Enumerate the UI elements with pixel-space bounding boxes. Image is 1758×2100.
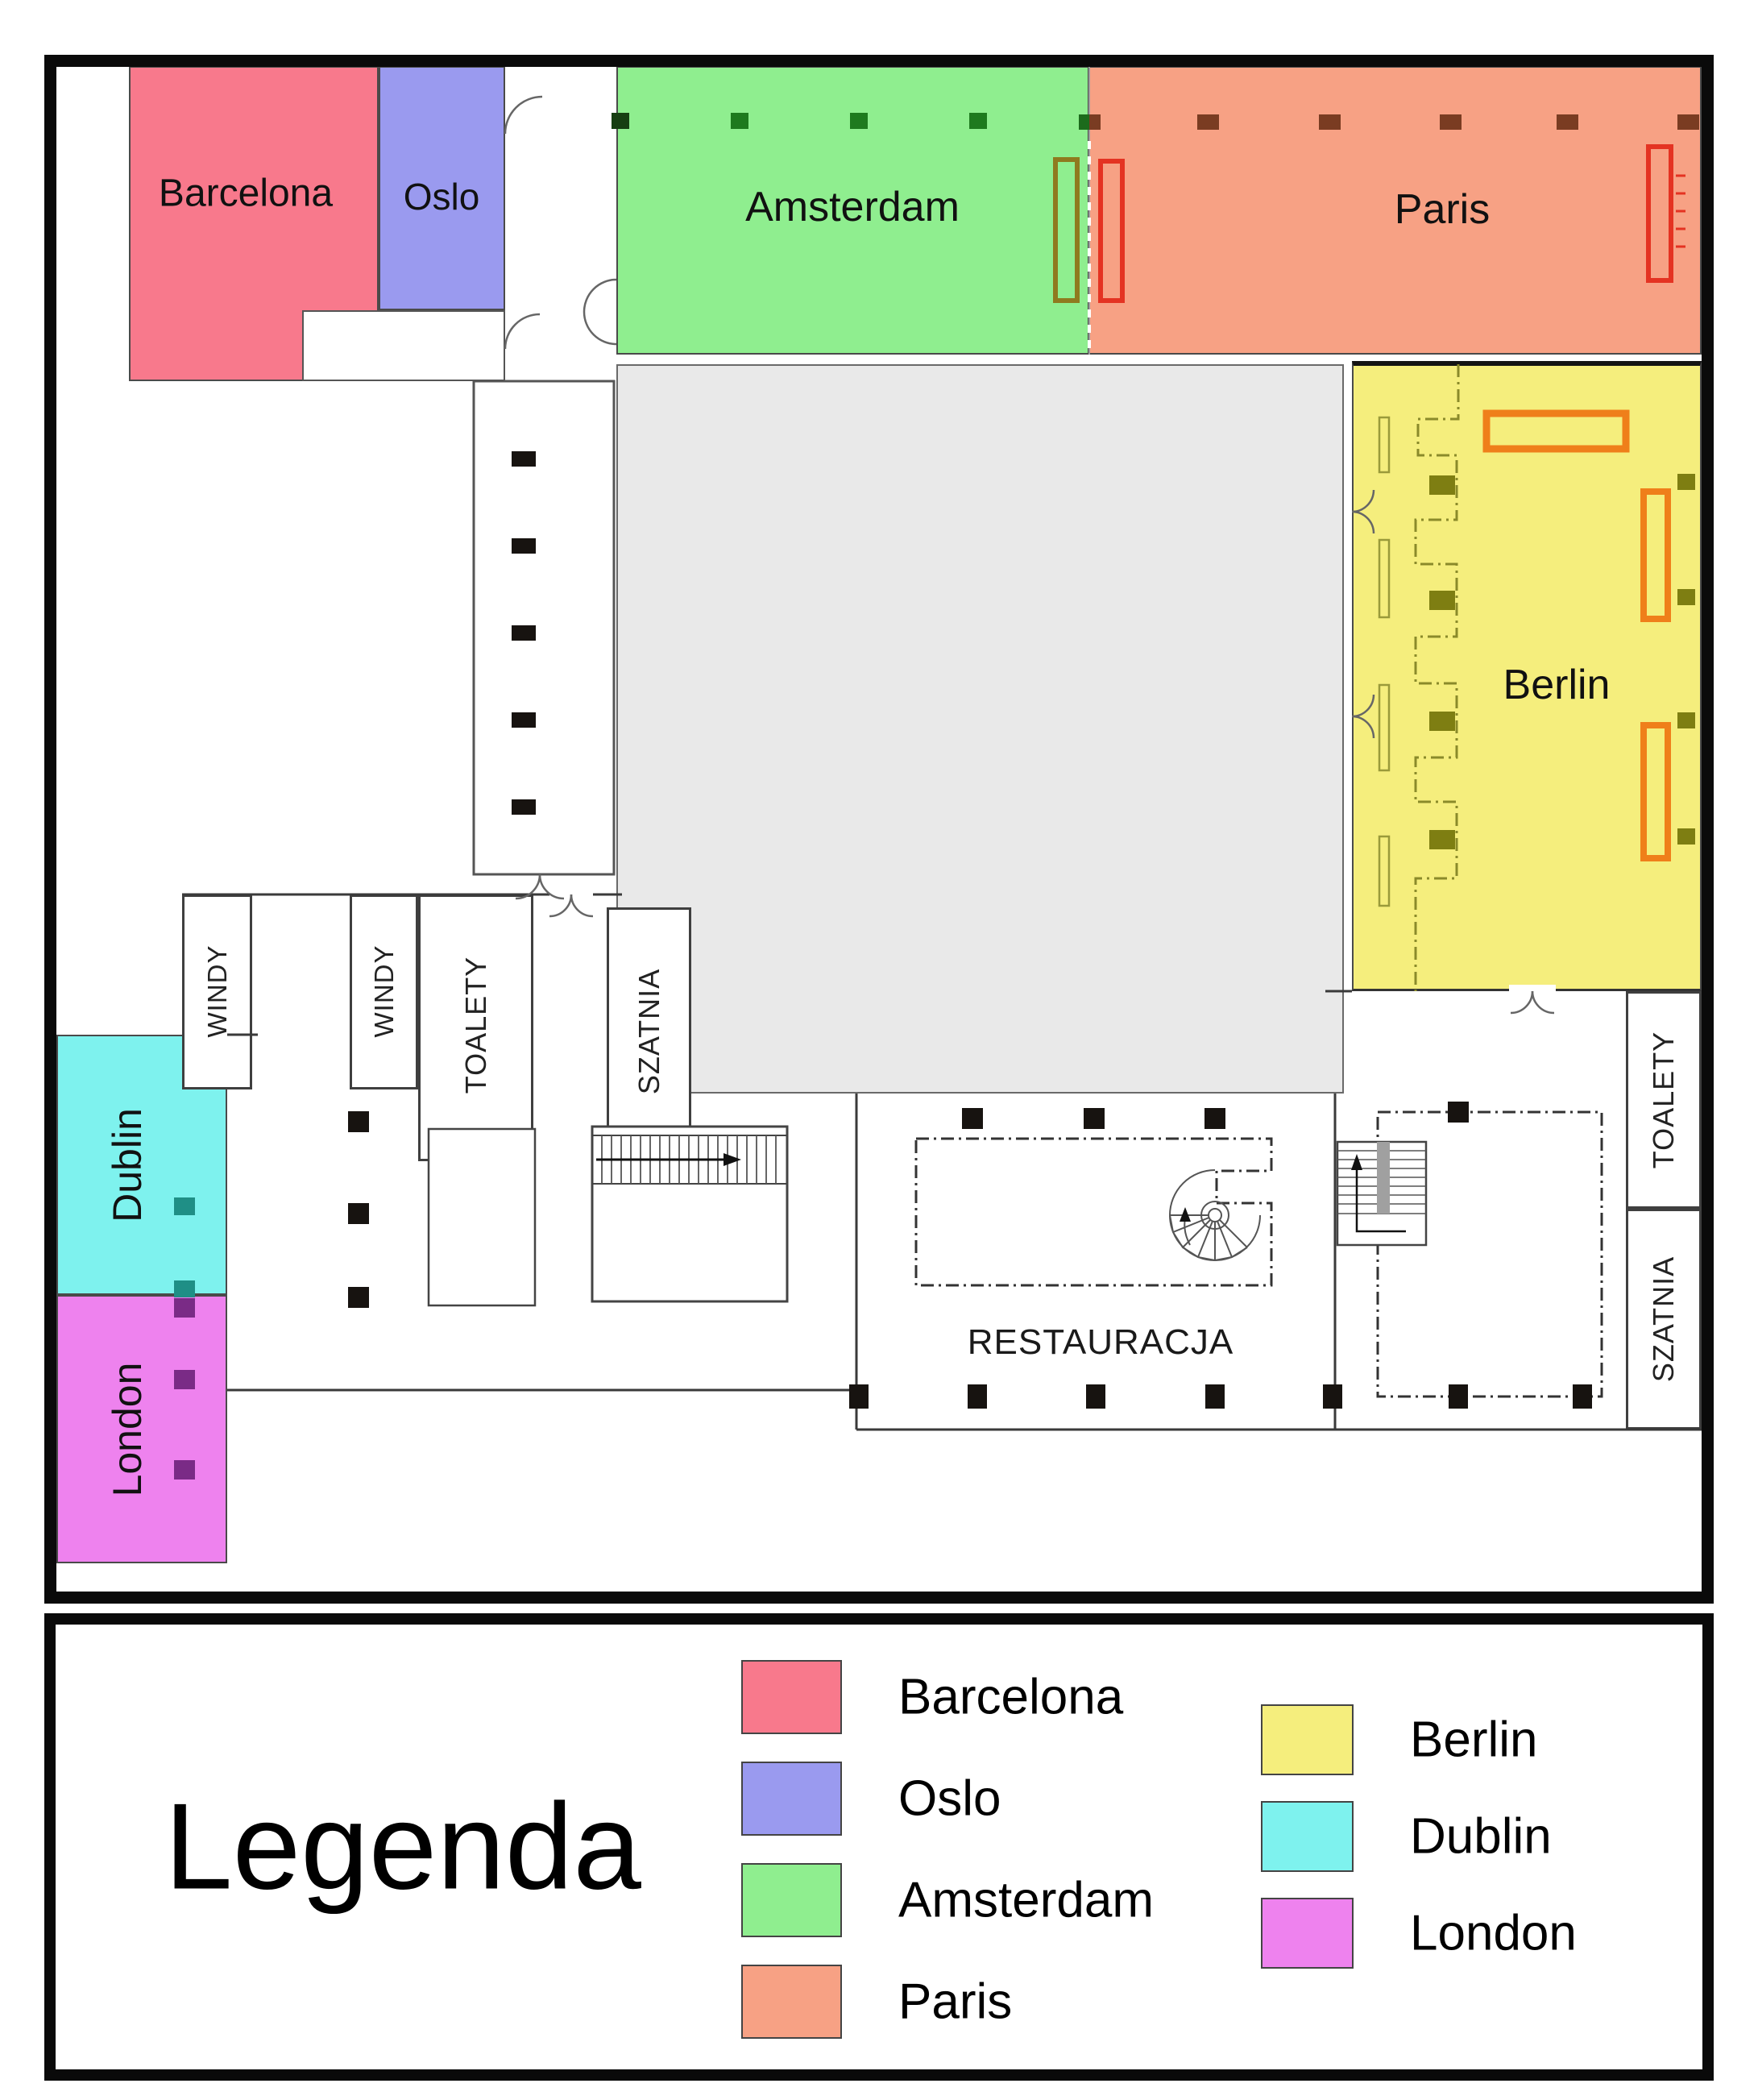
szatnia-label-1: SZATNIA — [632, 969, 666, 1094]
windy-label-1: WINDY — [202, 945, 233, 1038]
central-hall — [616, 364, 1344, 1094]
legend-swatch-paris — [741, 1965, 842, 2039]
restaurant-zone-outline — [916, 1139, 1271, 1285]
spiral-staircase-icon — [1170, 1170, 1260, 1260]
amsterdam-label: Amsterdam — [745, 183, 960, 231]
barcelona-label: Barcelona — [159, 172, 333, 216]
column-markers-shaft — [512, 451, 536, 815]
legend-swatch-oslo — [741, 1762, 842, 1836]
floor-plan-page: Barcelona Oslo Amsterdam Paris Berlin Du… — [0, 0, 1758, 2100]
windy-label-2: WINDY — [369, 945, 400, 1038]
legend-swatch-dublin — [1261, 1801, 1354, 1872]
toalety-label-2: TOALETY — [1647, 1031, 1681, 1168]
east-staircase-icon — [1337, 1142, 1426, 1245]
legend-label-dublin: Dublin — [1410, 1808, 1552, 1866]
legend-swatch-amsterdam — [741, 1863, 842, 1937]
restauracja-label: RESTAURACJA — [968, 1322, 1234, 1363]
shaft-room-outline — [474, 381, 614, 874]
london-label: London — [104, 1363, 151, 1497]
legend-label-amsterdam: Amsterdam — [898, 1872, 1154, 1929]
legend-label-barcelona: Barcelona — [898, 1669, 1123, 1726]
legend-title: Legenda — [164, 1777, 641, 1918]
berlin-label: Berlin — [1503, 661, 1611, 709]
column-markers-west — [348, 1111, 369, 1308]
legend-swatch-berlin — [1261, 1704, 1354, 1775]
paris-label: Paris — [1395, 185, 1490, 234]
legend-swatch-london — [1261, 1898, 1354, 1969]
dublin-label: Dublin — [104, 1108, 151, 1222]
toalety-label-1: TOALETY — [459, 957, 493, 1094]
wall-notch — [302, 310, 505, 381]
legend-label-berlin: Berlin — [1410, 1712, 1538, 1769]
legend-swatch-barcelona — [741, 1660, 842, 1734]
oslo-label: Oslo — [404, 175, 480, 218]
legend-label-london: London — [1410, 1905, 1577, 1962]
legend-label-oslo: Oslo — [898, 1770, 1001, 1828]
stairhall-zone-outline — [1378, 1112, 1602, 1397]
legend-label-paris: Paris — [898, 1973, 1012, 2031]
szatnia-label-2: SZATNIA — [1647, 1256, 1681, 1382]
